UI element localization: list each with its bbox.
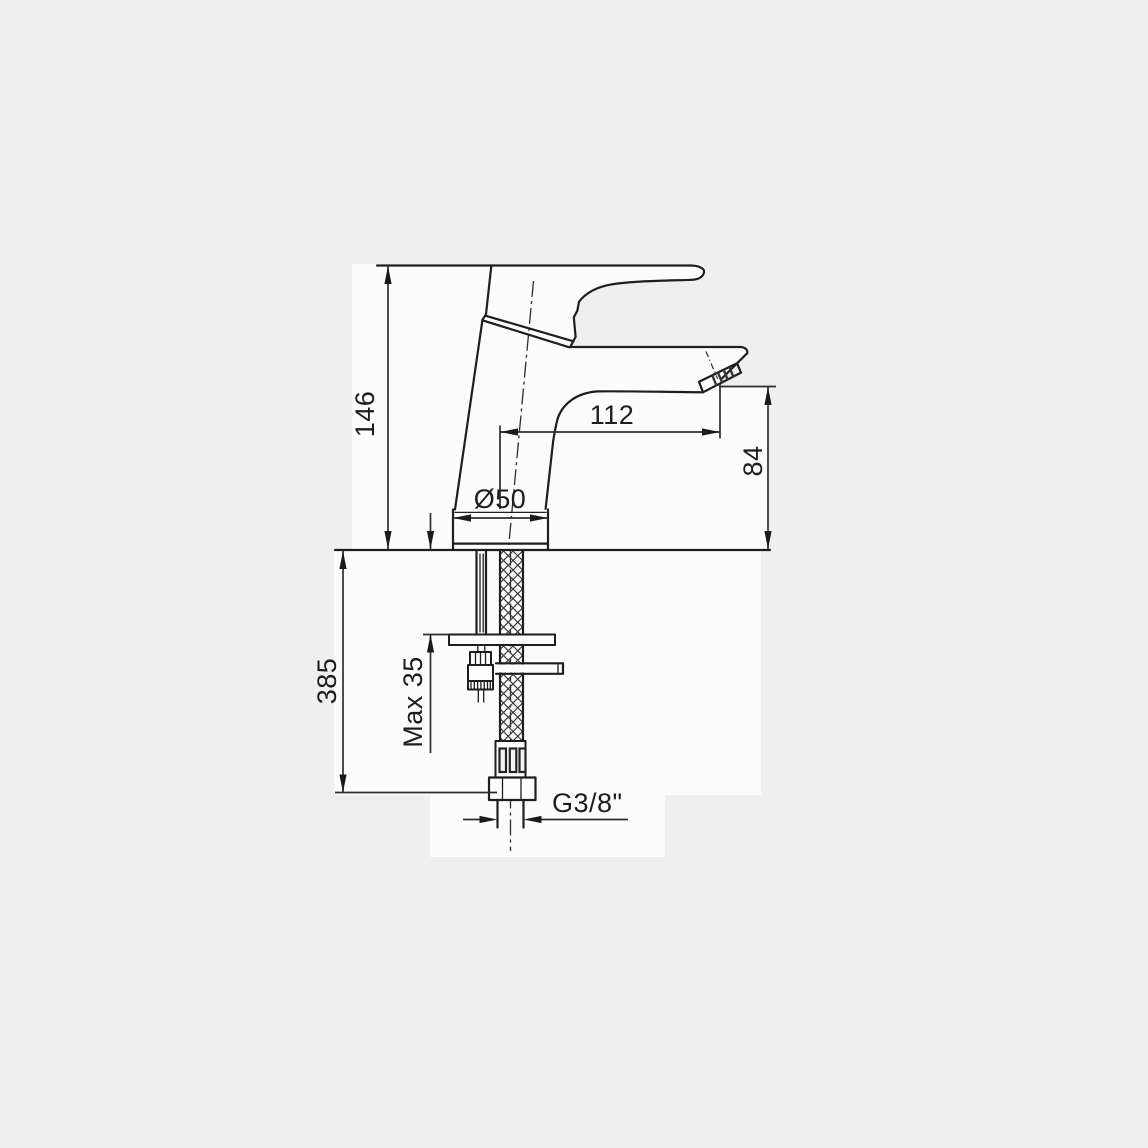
hose-hex-nut (489, 778, 536, 801)
dim-below-deck-385-label: 385 (312, 658, 342, 705)
dim-thread-g38-label: G3/8" (552, 788, 623, 818)
dim-max-thickness-35-label: Max 35 (398, 656, 428, 748)
second-hose-stub (496, 663, 563, 674)
faucet-dimension-drawing: 146 112 84 Ø50 385 Max 35 (0, 0, 1148, 1148)
dim-height-146-label: 146 (350, 391, 380, 438)
dim-base-diameter-50-label: Ø50 (474, 484, 527, 514)
dim-spout-height-84-label: 84 (738, 445, 768, 476)
technical-drawing-page: 146 112 84 Ø50 385 Max 35 (0, 0, 1148, 1148)
dim-reach-112-label: 112 (590, 400, 635, 430)
hose-crimp-ferrule (496, 741, 526, 778)
